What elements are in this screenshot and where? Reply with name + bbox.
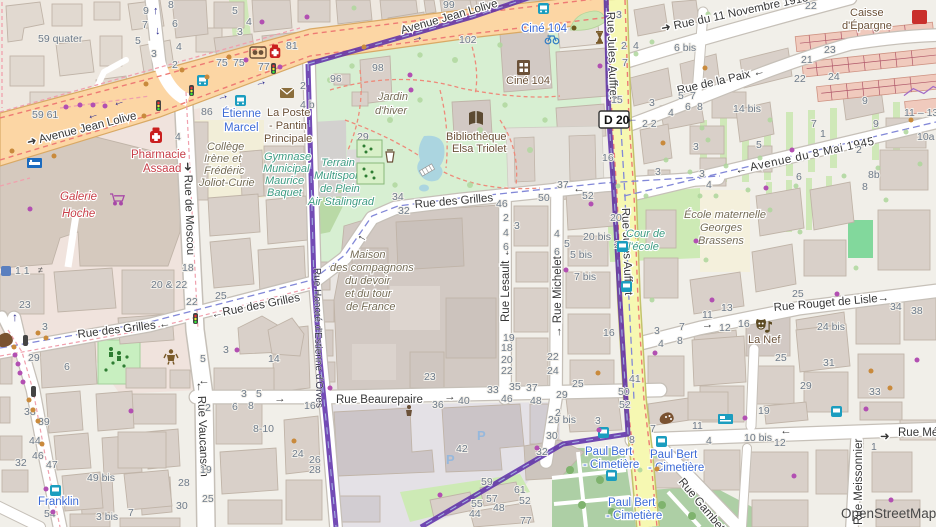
- svg-text:Pharmacie: Pharmacie: [131, 149, 186, 161]
- svg-text:48: 48: [493, 502, 505, 514]
- svg-text:99: 99: [443, 0, 455, 11]
- svg-text:15: 15: [611, 94, 623, 106]
- svg-text:14: 14: [268, 353, 280, 365]
- svg-text:44: 44: [29, 435, 41, 447]
- svg-text:11: 11: [692, 420, 703, 432]
- svg-text:21: 21: [801, 54, 813, 66]
- svg-text:2: 2: [856, 144, 862, 156]
- svg-text:8: 8: [248, 400, 254, 412]
- svg-text:2: 2: [300, 80, 306, 92]
- svg-text:18: 18: [501, 342, 513, 354]
- svg-text:Jardin: Jardin: [377, 91, 408, 103]
- svg-text:Multisport: Multisport: [314, 170, 363, 182]
- svg-text:33: 33: [869, 386, 881, 398]
- svg-text:3 bis: 3 bis: [96, 511, 118, 523]
- svg-text:P: P: [446, 452, 455, 467]
- svg-text:37: 37: [526, 382, 538, 394]
- svg-text:5: 5: [135, 35, 141, 47]
- svg-text:20 & 22: 20 & 22: [151, 279, 187, 291]
- svg-text:École maternelle: École maternelle: [684, 208, 766, 221]
- svg-text:8: 8: [629, 434, 635, 446]
- svg-text:22: 22: [547, 351, 559, 363]
- svg-text:3: 3: [649, 97, 655, 109]
- svg-text:↑: ↑: [153, 5, 159, 17]
- svg-text:33: 33: [487, 384, 499, 396]
- svg-text:Marcel: Marcel: [224, 122, 259, 134]
- svg-text:98: 98: [372, 62, 384, 74]
- svg-text:7 bis: 7 bis: [574, 271, 596, 283]
- svg-text:34: 34: [392, 191, 404, 203]
- svg-text:22: 22: [186, 296, 198, 308]
- svg-text:10a: 10a: [917, 131, 935, 143]
- svg-text:6: 6: [796, 171, 802, 183]
- svg-text:La Nef: La Nef: [748, 334, 781, 346]
- svg-text:Étienne: Étienne: [222, 107, 261, 120]
- svg-text:3: 3: [42, 321, 48, 333]
- svg-text:7: 7: [650, 423, 656, 435]
- svg-text:Maurice: Maurice: [265, 175, 304, 187]
- svg-text:11: 11: [702, 309, 713, 321]
- svg-text:29 bis: 29 bis: [548, 414, 576, 426]
- svg-text:59 61: 59 61: [32, 109, 58, 121]
- svg-text:du devoir: du devoir: [345, 275, 392, 287]
- svg-text:13: 13: [721, 302, 733, 314]
- svg-text:50: 50: [618, 386, 630, 398]
- svg-text:10 bis: 10 bis: [744, 432, 772, 444]
- svg-text:4: 4: [176, 41, 182, 53]
- svg-text:6: 6: [172, 18, 178, 30]
- svg-text:4: 4: [175, 131, 181, 143]
- svg-text:16: 16: [738, 318, 750, 330]
- svg-text:36: 36: [432, 399, 444, 411]
- svg-text:22: 22: [794, 73, 806, 85]
- svg-text:2: 2: [172, 59, 178, 71]
- svg-text:12: 12: [719, 322, 731, 334]
- svg-text:37: 37: [557, 179, 569, 191]
- svg-text:30: 30: [546, 430, 558, 442]
- svg-text:Collège: Collège: [207, 141, 244, 153]
- svg-text:25: 25: [775, 352, 787, 364]
- svg-text:9: 9: [143, 5, 149, 17]
- svg-text:28: 28: [178, 477, 190, 489]
- svg-text:5: 5: [756, 139, 762, 151]
- svg-text:Frédéric: Frédéric: [204, 165, 245, 177]
- svg-text:5: 5: [232, 5, 238, 17]
- svg-text:59: 59: [481, 476, 493, 488]
- svg-text:Rue Mé: Rue Mé: [898, 427, 936, 439]
- svg-text:- Pantin: - Pantin: [269, 120, 307, 132]
- svg-text:- Cimetière: - Cimetière: [583, 459, 639, 471]
- svg-text:D 20: D 20: [604, 113, 630, 127]
- svg-text:20 bis: 20 bis: [583, 231, 611, 243]
- svg-text:de Plein: de Plein: [320, 183, 360, 195]
- svg-text:44: 44: [469, 508, 481, 520]
- svg-text:23: 23: [424, 371, 436, 383]
- svg-text:Gymnase: Gymnase: [264, 151, 311, 163]
- svg-text:4: 4: [246, 16, 252, 28]
- svg-text:25: 25: [792, 288, 804, 300]
- svg-text:77: 77: [258, 61, 270, 73]
- svg-text:3: 3: [241, 388, 247, 400]
- svg-text:59 quater: 59 quater: [38, 33, 83, 45]
- svg-text:Air Stalingrad: Air Stalingrad: [307, 196, 375, 208]
- svg-text:52: 52: [619, 399, 631, 411]
- svg-text:Rue Lesault ←: Rue Lesault ←: [500, 246, 512, 322]
- svg-text:16: 16: [304, 400, 316, 412]
- svg-text:19: 19: [758, 405, 770, 417]
- svg-text:➜: ➜: [880, 431, 890, 443]
- svg-text:1: 1: [820, 128, 826, 140]
- svg-text:3: 3: [514, 220, 520, 232]
- svg-text:8b: 8b: [868, 169, 880, 181]
- svg-text:9: 9: [862, 95, 868, 107]
- svg-text:- Cimetière: - Cimetière: [606, 510, 662, 522]
- svg-text:7: 7: [622, 57, 628, 69]
- svg-text:Hoche: Hoche: [62, 208, 95, 220]
- svg-text:4: 4: [503, 227, 509, 239]
- svg-text:29: 29: [800, 380, 812, 392]
- svg-text:38: 38: [911, 305, 923, 317]
- svg-text:34: 34: [890, 301, 902, 313]
- svg-text:des compagnons: des compagnons: [330, 262, 414, 274]
- svg-text:Principale: Principale: [264, 133, 312, 145]
- svg-text:3: 3: [699, 168, 705, 180]
- svg-text:22: 22: [501, 365, 513, 377]
- svg-text:23: 23: [824, 44, 836, 56]
- svg-text:6: 6: [64, 361, 70, 373]
- svg-text:2: 2: [555, 407, 561, 419]
- svg-text:Caisse: Caisse: [850, 7, 884, 19]
- svg-text:3: 3: [654, 325, 660, 337]
- svg-text:8: 8: [697, 101, 703, 113]
- svg-text:et du tour: et du tour: [345, 288, 393, 300]
- svg-text:→ Rue Michelet: → Rue Michelet: [552, 255, 564, 338]
- svg-text:81: 81: [286, 40, 298, 52]
- svg-text:49 bis: 49 bis: [87, 472, 115, 484]
- svg-text:5: 5: [200, 353, 206, 365]
- svg-text:46: 46: [496, 198, 508, 210]
- svg-text:2: 2: [205, 402, 211, 414]
- svg-text:1: 1: [871, 441, 877, 453]
- svg-text:23: 23: [19, 299, 31, 311]
- svg-text:Rue Beaurepaire: Rue Beaurepaire: [336, 394, 423, 406]
- svg-text:de France: de France: [346, 301, 396, 313]
- svg-text:Franklin: Franklin: [38, 496, 79, 508]
- svg-text:46: 46: [32, 450, 44, 462]
- svg-text:3: 3: [693, 141, 699, 153]
- svg-text:Elsa Triolet: Elsa Triolet: [452, 143, 506, 155]
- svg-text:Georges: Georges: [700, 222, 743, 234]
- svg-text:16: 16: [602, 152, 614, 164]
- svg-text:24: 24: [828, 71, 840, 83]
- svg-text:42: 42: [456, 443, 468, 455]
- svg-text:8: 8: [168, 0, 174, 11]
- svg-text:102: 102: [459, 34, 477, 46]
- svg-text:24 bis: 24 bis: [817, 321, 845, 333]
- svg-text:4: 4: [658, 338, 664, 350]
- svg-text:←: ←: [780, 425, 792, 437]
- svg-text:9: 9: [873, 118, 879, 130]
- svg-text:7: 7: [128, 507, 134, 519]
- svg-text:1 1: 1 1: [15, 265, 30, 277]
- svg-text:Assaad: Assaad: [143, 163, 181, 175]
- svg-text:75: 75: [233, 57, 245, 69]
- svg-text:14 bis: 14 bis: [733, 103, 761, 115]
- svg-text:Ciné 104: Ciné 104: [506, 75, 550, 87]
- svg-text:Paul Bert: Paul Bert: [608, 497, 656, 509]
- svg-text:24: 24: [547, 365, 559, 377]
- svg-text:4: 4: [554, 228, 560, 240]
- svg-text:7: 7: [811, 118, 817, 130]
- svg-text:6 bis: 6 bis: [674, 42, 696, 54]
- svg-text:2: 2: [621, 40, 627, 52]
- svg-text:4: 4: [706, 435, 712, 447]
- svg-text:≠: ≠: [38, 265, 43, 275]
- svg-text:OpenStreetMap: OpenStreetMap: [841, 506, 936, 521]
- svg-text:Baquet: Baquet: [267, 187, 303, 199]
- svg-text:Cour de: Cour de: [626, 228, 665, 240]
- svg-text:←: ←: [198, 375, 210, 387]
- svg-text:32: 32: [15, 457, 27, 469]
- svg-text:↓: ↓: [155, 25, 161, 37]
- svg-text:Bibliothèque: Bibliothèque: [446, 131, 507, 143]
- svg-text:→: →: [444, 391, 456, 403]
- svg-text:32: 32: [398, 205, 410, 217]
- svg-text:18: 18: [182, 262, 194, 274]
- svg-text:2: 2: [503, 212, 509, 224]
- svg-text:l'école: l'école: [628, 241, 659, 253]
- svg-text:25: 25: [572, 378, 584, 390]
- svg-text:Municipal: Municipal: [263, 163, 310, 175]
- svg-text:29: 29: [28, 352, 40, 364]
- svg-text:19: 19: [200, 464, 212, 476]
- svg-text:3: 3: [237, 26, 243, 38]
- svg-text:8-10: 8-10: [253, 423, 274, 435]
- svg-text:Maison: Maison: [350, 249, 385, 261]
- svg-text:2 2: 2 2: [642, 118, 657, 130]
- svg-text:Terrain: Terrain: [321, 157, 355, 169]
- svg-text:3: 3: [595, 415, 601, 427]
- svg-text:3: 3: [223, 344, 229, 356]
- svg-text:Joliot-Curie: Joliot-Curie: [198, 177, 255, 189]
- svg-text:↑: ↑: [12, 310, 18, 324]
- svg-text:4 b: 4 b: [300, 99, 315, 111]
- svg-text:35: 35: [509, 381, 521, 393]
- svg-text:16: 16: [603, 327, 615, 339]
- svg-text:3: 3: [151, 48, 157, 60]
- svg-text:4: 4: [706, 179, 712, 191]
- svg-text:8: 8: [677, 335, 683, 347]
- svg-text:96: 96: [330, 73, 342, 85]
- svg-text:47: 47: [46, 459, 58, 471]
- svg-text:6: 6: [232, 401, 238, 413]
- svg-text:Brassens: Brassens: [698, 235, 744, 247]
- svg-text:28: 28: [309, 464, 321, 476]
- svg-text:25: 25: [215, 290, 227, 302]
- svg-text:24: 24: [292, 448, 304, 460]
- svg-text:52: 52: [582, 190, 594, 202]
- svg-text:7: 7: [142, 19, 148, 31]
- svg-text:5: 5: [678, 90, 684, 102]
- svg-text:7: 7: [690, 90, 696, 102]
- svg-text:40: 40: [458, 395, 470, 407]
- svg-text:31: 31: [823, 357, 835, 369]
- svg-text:25: 25: [202, 493, 214, 505]
- svg-text:8: 8: [862, 181, 868, 193]
- svg-text:48: 48: [530, 395, 542, 407]
- svg-text:Paul Bert: Paul Bert: [585, 446, 633, 458]
- svg-text:5 bis: 5 bis: [570, 249, 592, 261]
- svg-text:Irène et: Irène et: [204, 153, 242, 165]
- svg-text:Galerie: Galerie: [60, 191, 97, 203]
- svg-text:7: 7: [679, 321, 685, 333]
- svg-text:46: 46: [501, 393, 513, 405]
- svg-text:4: 4: [633, 40, 639, 52]
- svg-text:d'Épargne: d'Épargne: [842, 19, 892, 32]
- svg-text:86: 86: [201, 106, 213, 118]
- svg-text:5: 5: [256, 388, 262, 400]
- svg-text:3: 3: [655, 166, 661, 178]
- svg-text:52: 52: [519, 495, 531, 507]
- svg-text:3: 3: [616, 9, 622, 21]
- svg-text:12: 12: [774, 437, 786, 449]
- svg-text:22: 22: [805, 0, 817, 12]
- svg-text:6: 6: [554, 246, 560, 258]
- svg-text:41: 41: [629, 373, 641, 385]
- svg-text:77: 77: [520, 515, 532, 527]
- svg-text:50: 50: [538, 192, 550, 204]
- svg-text:29: 29: [556, 389, 568, 401]
- svg-text:d'hiver: d'hiver: [375, 105, 408, 117]
- svg-text:Ciné 104: Ciné 104: [521, 23, 568, 35]
- svg-text:6: 6: [685, 101, 691, 113]
- svg-text:Paul Bert: Paul Bert: [650, 449, 698, 461]
- svg-text:4: 4: [668, 107, 674, 119]
- svg-text:75: 75: [216, 57, 228, 69]
- svg-text:20: 20: [610, 212, 622, 224]
- svg-text:P: P: [477, 428, 486, 443]
- svg-text:6: 6: [503, 241, 509, 253]
- svg-text:30: 30: [176, 500, 188, 512]
- svg-text:→: →: [274, 393, 286, 405]
- svg-text:11 – 13: 11 – 13: [904, 107, 936, 119]
